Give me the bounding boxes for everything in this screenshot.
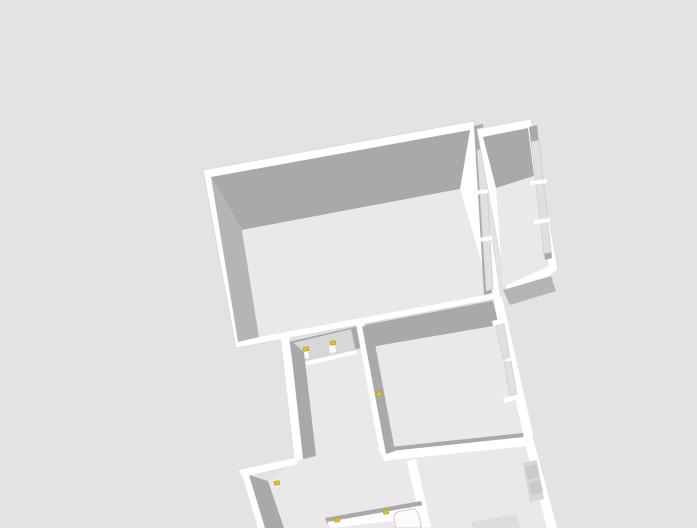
- outlet-marker: [274, 481, 280, 486]
- outlet-marker: [383, 510, 389, 515]
- floorplan-3d-viewport[interactable]: [0, 0, 697, 528]
- outlet-marker: [334, 518, 340, 523]
- door-hinge-tab: [329, 345, 336, 353]
- outlet-marker: [303, 347, 309, 352]
- outlet-marker: [376, 392, 382, 397]
- bathroom-fixture: [394, 509, 421, 528]
- outlet-marker: [330, 341, 336, 346]
- floorplan-canvas: [0, 0, 697, 528]
